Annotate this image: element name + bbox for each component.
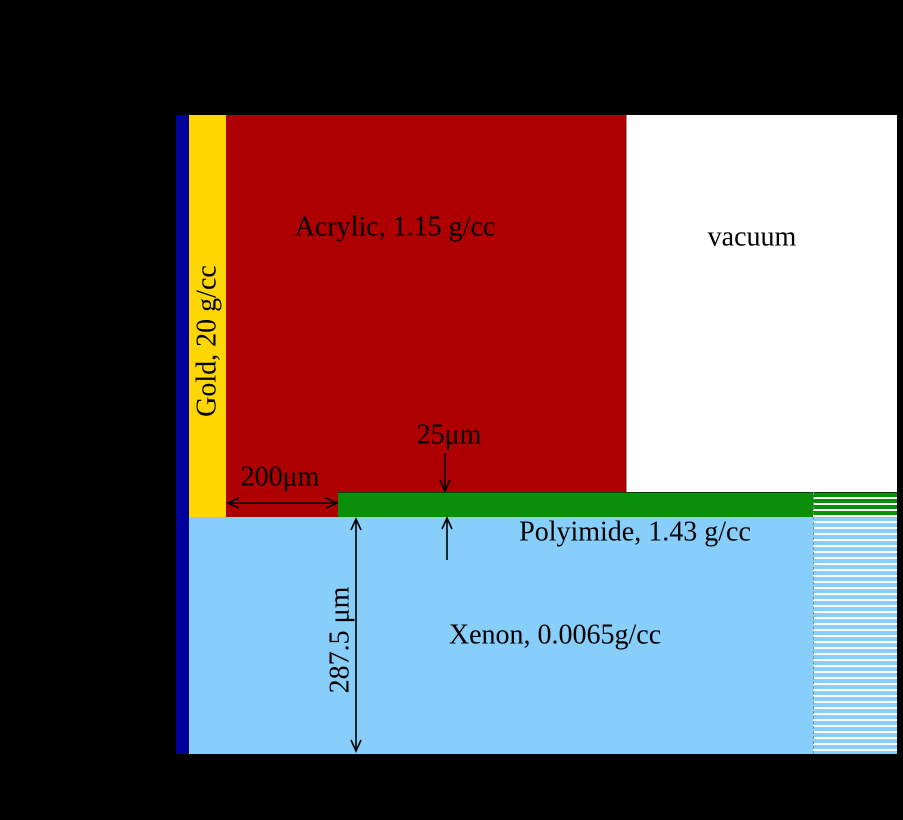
- dimension-label-287um: 287.5 μm: [325, 587, 354, 694]
- polyimide-region-label: Polyimide, 1.43 g/cc: [519, 517, 751, 546]
- dimension-arrows: [176, 115, 897, 754]
- xenon-region-label: Xenon, 0.0065g/cc: [449, 620, 661, 649]
- acrylic-region-label: Acrylic, 1.15 g/cc: [295, 212, 496, 241]
- dimension-label-25um: 25μm: [417, 420, 482, 449]
- vacuum-region-label: vacuum: [708, 222, 797, 251]
- figure-canvas: Gold, 20 g/cc Acrylic, 1.15 g/cc vacuum …: [0, 0, 903, 820]
- dimension-label-200um: 200μm: [241, 462, 320, 491]
- geometry-plot: Gold, 20 g/cc Acrylic, 1.15 g/cc vacuum …: [176, 115, 897, 754]
- gold-region-label: Gold, 20 g/cc: [192, 265, 221, 417]
